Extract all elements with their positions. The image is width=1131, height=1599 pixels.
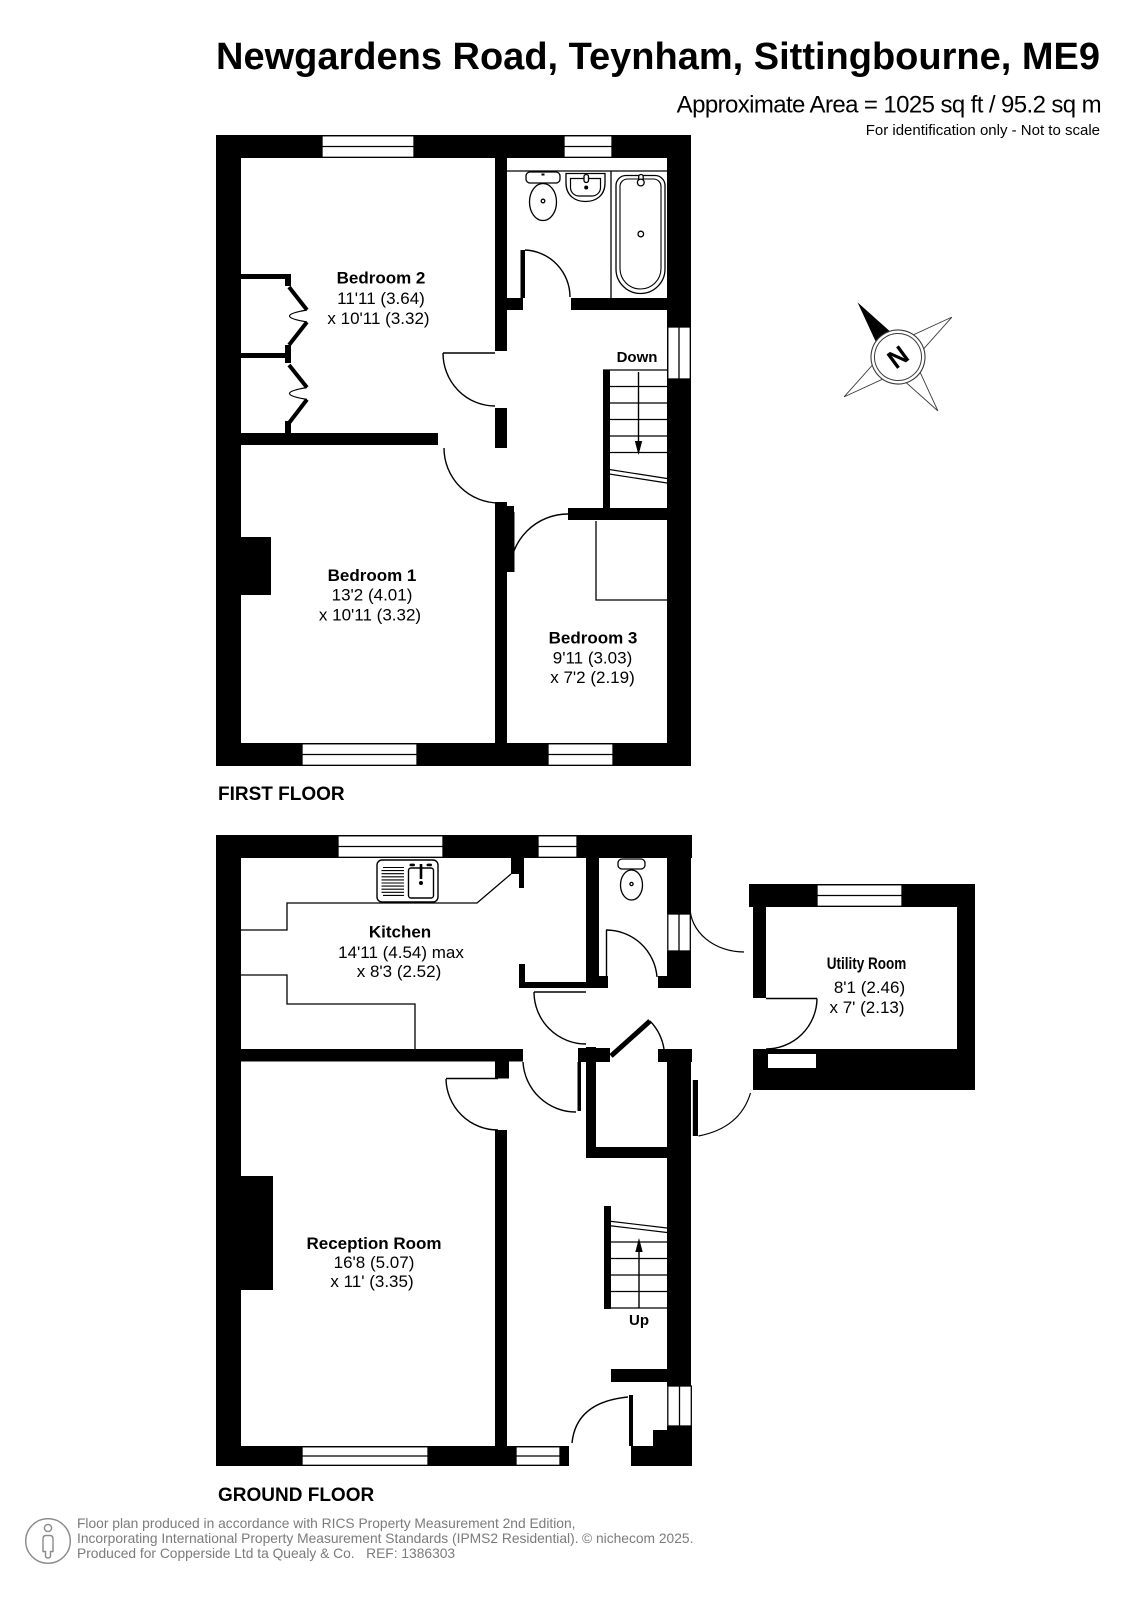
svg-text:16'8 (5.07): 16'8 (5.07) (334, 1253, 415, 1272)
svg-text:Bedroom 1: Bedroom 1 (328, 566, 417, 585)
svg-text:x 7'2 (2.19): x 7'2 (2.19) (550, 668, 635, 687)
svg-text:x 7' (2.13): x 7' (2.13) (829, 998, 904, 1017)
svg-text:Down: Down (617, 349, 658, 366)
svg-text:Produced for Copperside Ltd ta: Produced for Copperside Ltd ta Quealy & … (77, 1546, 455, 1561)
svg-text:x 10'11 (3.32): x 10'11 (3.32) (319, 606, 421, 625)
svg-text:Bedroom 3: Bedroom 3 (549, 629, 638, 648)
svg-text:Kitchen: Kitchen (369, 923, 431, 942)
svg-text:x 10'11 (3.32): x 10'11 (3.32) (327, 309, 429, 328)
svg-text:FIRST FLOOR: FIRST FLOOR (218, 784, 345, 805)
svg-text:x 8'3 (2.52): x 8'3 (2.52) (357, 962, 442, 981)
svg-text:Approximate Area = 1025 sq ft: Approximate Area = 1025 sq ft / 95.2 sq … (677, 92, 1101, 119)
svg-text:x 11' (3.35): x 11' (3.35) (330, 1272, 413, 1291)
svg-text:8'1 (2.46): 8'1 (2.46) (834, 978, 905, 997)
svg-text:Floor plan produced in accorda: Floor plan produced in accordance with R… (77, 1516, 575, 1531)
svg-text:13'2 (4.01): 13'2 (4.01) (332, 586, 413, 605)
svg-text:9'11 (3.03): 9'11 (3.03) (553, 649, 632, 668)
svg-text:Utility Room: Utility Room (827, 955, 907, 974)
svg-text:Reception Room: Reception Room (306, 1234, 441, 1253)
svg-text:GROUND FLOOR: GROUND FLOOR (218, 1485, 374, 1506)
svg-text:Bedroom 2: Bedroom 2 (337, 269, 426, 288)
svg-text:Incorporating International Pr: Incorporating International Property Mea… (77, 1531, 579, 1546)
svg-text:Up: Up (629, 1312, 649, 1329)
svg-text:For identification only - Not: For identification only - Not to scale (866, 122, 1100, 139)
svg-text:Newgardens Road, Teynham, Sitt: Newgardens Road, Teynham, Sittingbourne,… (216, 36, 1100, 78)
svg-text:14'11 (4.54) max: 14'11 (4.54) max (338, 943, 464, 962)
svg-text:© nichecom 2025.: © nichecom 2025. (582, 1531, 693, 1546)
svg-text:11'11 (3.64): 11'11 (3.64) (337, 289, 425, 308)
